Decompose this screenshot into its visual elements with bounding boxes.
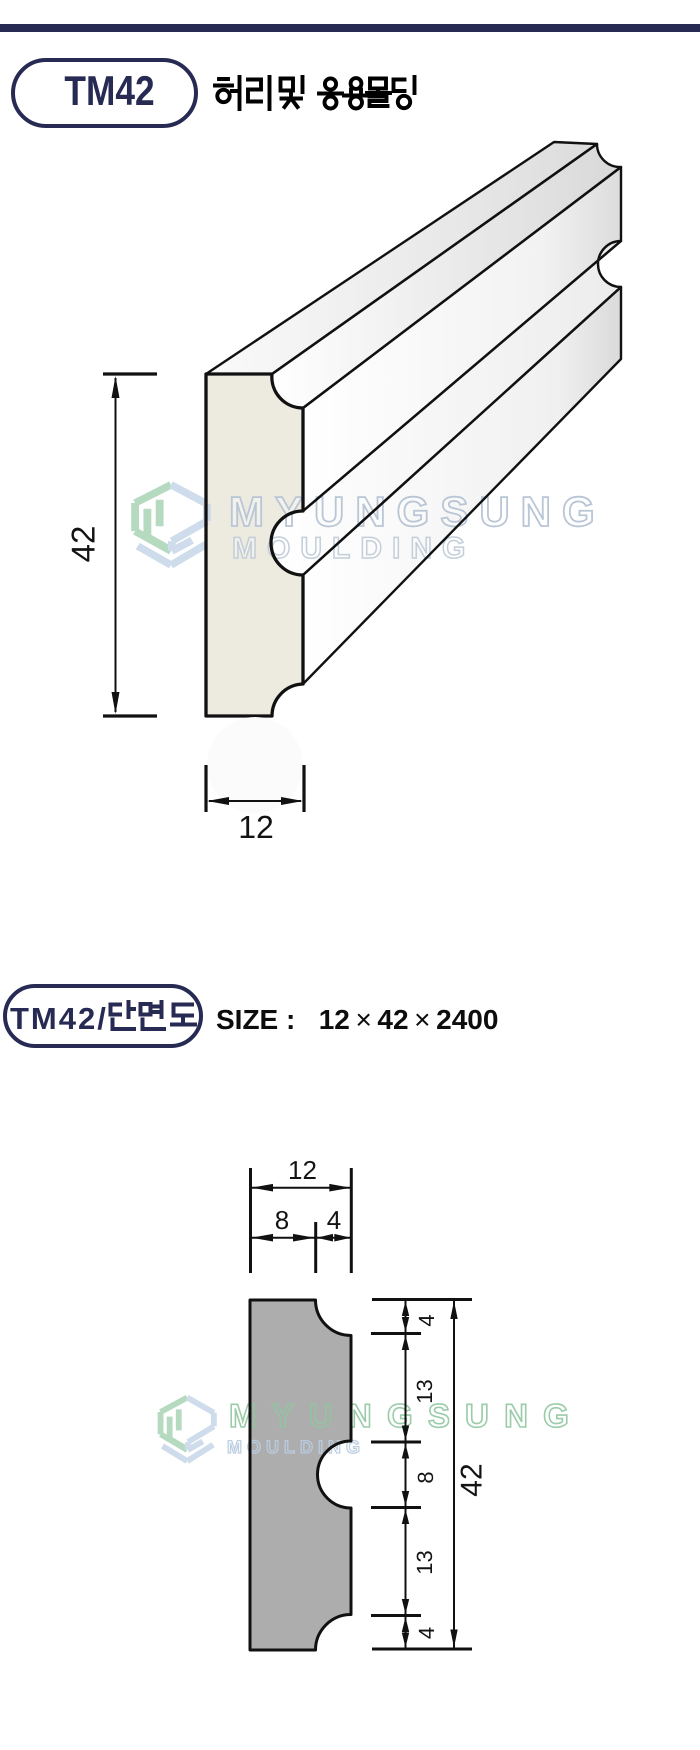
- svg-text:12: 12: [238, 809, 274, 845]
- svg-text:13: 13: [412, 1550, 437, 1574]
- svg-text:8: 8: [275, 1205, 289, 1235]
- svg-text:13: 13: [412, 1379, 437, 1403]
- svg-text:4: 4: [414, 1627, 439, 1639]
- svg-text:4: 4: [414, 1314, 439, 1326]
- svg-text:12: 12: [288, 1155, 317, 1185]
- svg-text:8: 8: [413, 1471, 438, 1483]
- svg-text:MOULDING: MOULDING: [227, 1437, 365, 1457]
- svg-text:42: 42: [455, 1463, 488, 1496]
- svg-text:MYUNGSUNG: MYUNGSUNG: [229, 488, 606, 535]
- svg-text:4: 4: [327, 1205, 341, 1235]
- svg-text:42: 42: [65, 526, 102, 563]
- svg-text:MOULDING: MOULDING: [232, 532, 475, 565]
